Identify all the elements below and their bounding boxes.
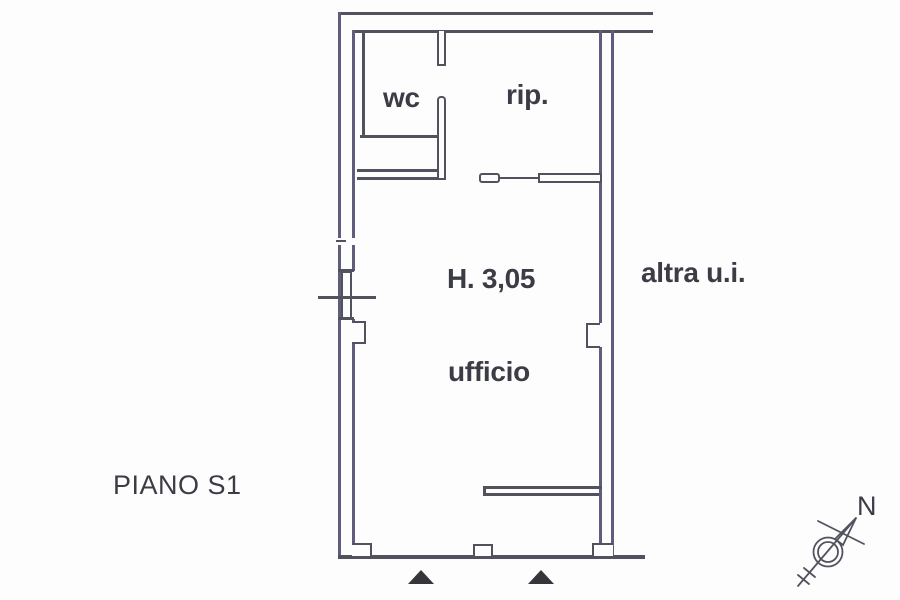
window-sill-line — [318, 296, 376, 299]
pier-right-mid — [586, 323, 600, 348]
wall-wc-rip-jamb-upper — [437, 31, 446, 66]
wall-interior-top — [483, 486, 602, 489]
adjacent-unit-label: altra u.i. — [641, 259, 745, 287]
floor-label: PIANO S1 — [113, 472, 242, 499]
pier-bottom-left — [352, 543, 372, 556]
wall-top-outer — [338, 12, 653, 15]
wall-left-break-tick — [336, 240, 346, 242]
room-label-rip: rip. — [506, 81, 548, 109]
wall-left-inner-mid — [352, 245, 355, 271]
wall-interior-bottom — [483, 493, 599, 496]
wall-right-outer — [611, 30, 614, 555]
floor-plan-canvas: wc rip. H. 3,05 altra u.i. ufficio PIANO… — [0, 0, 900, 600]
wall-wc-rip-jamb-lower — [437, 96, 446, 180]
room-label-ufficio: ufficio — [448, 358, 530, 386]
wall-wc-bottom-lower — [357, 177, 445, 180]
wall-wc-bottom-upper — [357, 169, 445, 172]
wall-wc-shelf — [360, 135, 437, 138]
wall-interior-end-cap — [483, 486, 486, 496]
wall-top-inner — [352, 30, 653, 33]
entrance-triangle-icon — [528, 570, 554, 584]
wall-wc-left — [362, 30, 365, 138]
wall-left-outer-upper — [338, 12, 341, 238]
pier-left-mid — [352, 321, 366, 344]
north-compass-icon — [778, 483, 893, 598]
wall-right-inner-lower — [599, 347, 602, 543]
wall-left-inner-lower — [352, 319, 355, 543]
wall-left-inner-upper — [352, 30, 355, 238]
sliding-door-leaf — [479, 173, 500, 183]
sliding-door-pocket — [538, 173, 602, 183]
window-cap-bottom — [338, 317, 354, 320]
pier-bottom-right — [592, 543, 613, 556]
height-annotation: H. 3,05 — [447, 265, 535, 293]
room-label-wc: wc — [383, 84, 420, 112]
entrance-triangle-icon — [408, 570, 434, 584]
window-glazing — [341, 271, 352, 319]
pier-bottom-center — [473, 544, 493, 556]
sliding-door-track — [499, 177, 539, 179]
